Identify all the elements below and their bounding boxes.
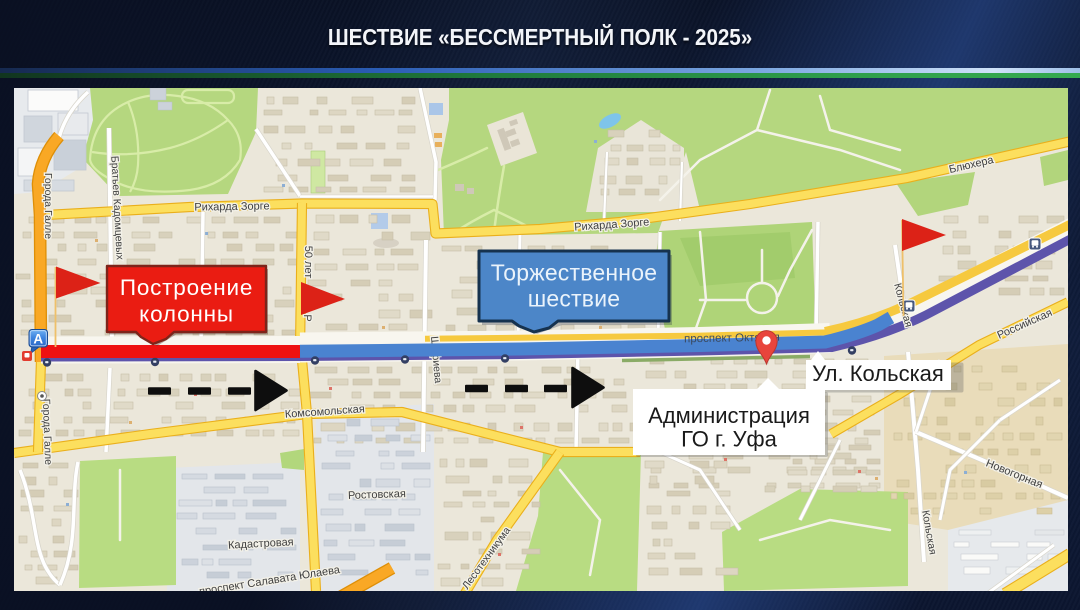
svg-text:Администрация: Администрация: [648, 403, 810, 428]
svg-text:50 лет: 50 лет: [302, 246, 314, 279]
svg-text:A: A: [33, 332, 43, 347]
svg-text:ГО г. Уфа: ГО г. Уфа: [681, 427, 778, 452]
svg-text:Ростовская: Ростовская: [348, 488, 406, 502]
svg-text:Р: Р: [301, 314, 313, 321]
svg-text:Ул. Кольская: Ул. Кольская: [812, 361, 944, 386]
svg-text:Города Галле: Города Галле: [42, 173, 54, 239]
svg-text:Построение: Построение: [120, 275, 253, 300]
svg-text:Рихарда Зорге: Рихарда Зорге: [194, 200, 269, 213]
svg-text:Города Галле: Города Галле: [40, 399, 54, 466]
svg-text:шествие: шествие: [528, 286, 621, 312]
svg-text:Торжественное: Торжественное: [491, 260, 657, 286]
svg-text:колонны: колонны: [139, 302, 234, 327]
